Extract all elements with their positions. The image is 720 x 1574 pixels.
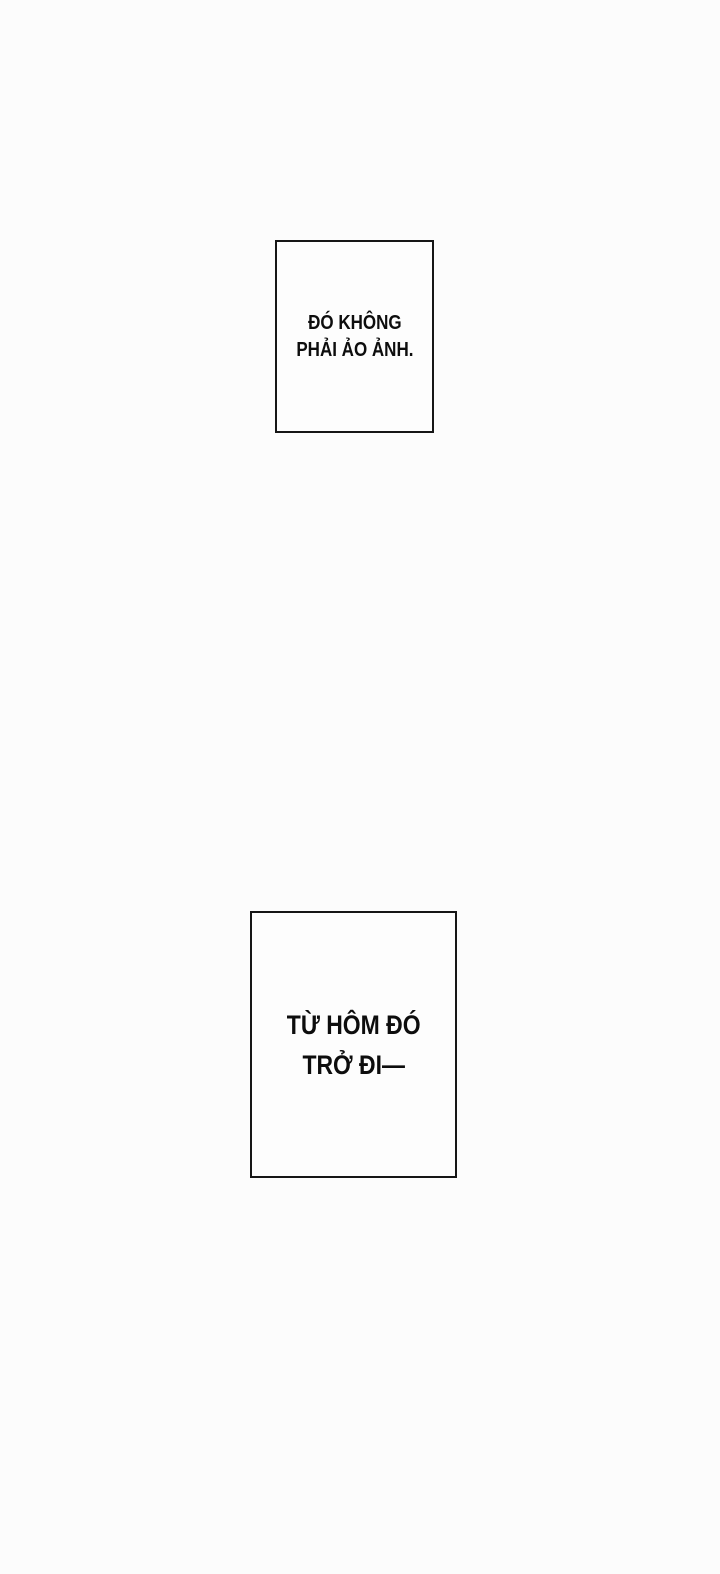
comic-page: ĐÓ KHÔNG PHẢI ẢO ẢNH. TỪ HÔM ĐÓ TRỞ ĐI— (0, 0, 720, 1574)
narration-box-1-text: ĐÓ KHÔNG PHẢI ẢO ẢNH. (296, 310, 413, 364)
narration-box-2: TỪ HÔM ĐÓ TRỞ ĐI— (250, 911, 457, 1178)
narration-line: PHẢI ẢO ẢNH. (296, 337, 413, 364)
narration-box-2-text: TỪ HÔM ĐÓ TRỞ ĐI— (287, 1005, 421, 1085)
narration-line: TỪ HÔM ĐÓ (287, 1005, 421, 1045)
narration-line: TRỞ ĐI— (287, 1045, 421, 1085)
narration-line: ĐÓ KHÔNG (296, 310, 413, 337)
narration-box-1: ĐÓ KHÔNG PHẢI ẢO ẢNH. (275, 240, 434, 433)
